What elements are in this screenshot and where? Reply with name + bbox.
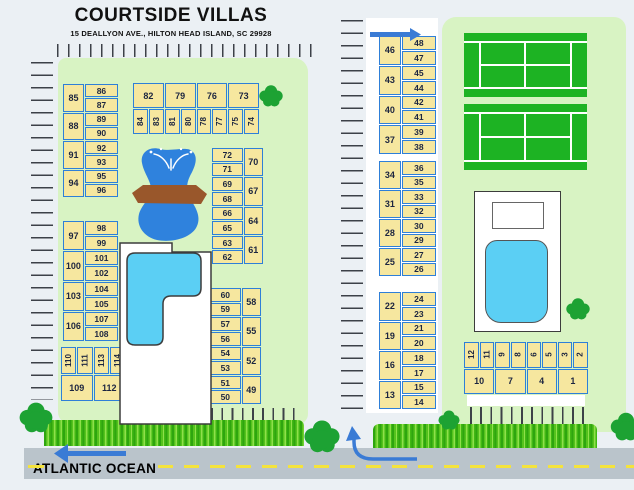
unit-109: 109 [61,375,93,402]
unit-102: 102 [85,266,118,280]
unit-20: 20 [402,336,436,350]
unit-44: 44 [402,81,436,95]
unit-118: 118 [159,375,191,402]
unit-83: 83 [149,109,164,134]
unit-38: 38 [402,140,436,154]
unit-66: 66 [212,207,243,221]
unit-42: 42 [402,96,436,110]
unit-88: 88 [63,113,84,141]
unit-98: 98 [85,221,118,235]
unit-7: 7 [495,369,525,395]
unit-21: 21 [402,322,436,336]
unit-116: 116 [126,347,141,374]
unit-33: 33 [402,190,436,204]
building-61-72: 727170696867666564636261 [212,148,263,264]
unit-57: 57 [210,317,241,331]
unit-101: 101 [85,251,118,265]
unit-68: 68 [212,192,243,206]
unit-47: 47 [402,51,436,65]
unit-117: 117 [142,347,157,374]
unit-77: 77 [212,109,227,134]
unit-12: 12 [464,342,479,368]
unit-81: 81 [165,109,180,134]
unit-104: 104 [85,282,118,296]
unit-76: 76 [197,83,228,108]
unit-40: 40 [379,96,401,125]
unit-55: 55 [242,317,261,345]
unit-95: 95 [85,170,118,183]
unit-120: 120 [175,347,190,374]
building-73-84: 827976738483818078777574 [133,83,259,134]
unit-26: 26 [402,263,436,277]
unit-15: 15 [402,381,436,395]
building-1-12: 121198653210741 [464,342,588,394]
unit-91: 91 [63,141,84,169]
unit-69: 69 [212,177,243,191]
unit-97: 97 [63,221,84,250]
unit-63: 63 [212,236,243,250]
unit-80: 80 [181,109,196,134]
unit-64: 64 [244,207,263,235]
building-37-48: 464847434544404241373938 [379,36,436,154]
unit-100: 100 [63,251,84,280]
unit-3: 3 [558,342,573,368]
unit-43: 43 [379,66,401,95]
unit-71: 71 [212,163,243,177]
unit-45: 45 [402,66,436,80]
unit-10: 10 [464,369,494,395]
unit-92: 92 [85,141,118,154]
building-25-36: 343635313332283029252726 [379,161,436,276]
unit-70: 70 [244,148,263,176]
unit-19: 19 [379,322,401,351]
unit-58: 58 [242,288,261,316]
unit-46: 46 [379,36,401,65]
building-97-108: 979899100101102103104105106107108 [63,221,118,341]
unit-85: 85 [63,84,84,112]
unit-119: 119 [159,347,174,374]
unit-52: 52 [242,347,261,375]
unit-94: 94 [63,170,84,198]
unit-27: 27 [402,248,436,262]
unit-29: 29 [402,234,436,248]
unit-105: 105 [85,297,118,311]
unit-2: 2 [573,342,588,368]
buildings-layer: 8586878889909192939495968279767384838180… [0,0,634,490]
unit-30: 30 [402,219,436,233]
building-13-24: 222423192120161817131514 [379,292,436,409]
unit-106: 106 [63,312,84,341]
unit-79: 79 [165,83,196,108]
unit-74: 74 [244,109,259,134]
unit-32: 32 [402,205,436,219]
unit-67: 67 [244,177,263,205]
unit-1: 1 [558,369,588,395]
unit-115: 115 [126,375,158,402]
unit-89: 89 [85,113,118,126]
unit-39: 39 [402,125,436,139]
unit-113: 113 [94,347,109,374]
unit-9: 9 [495,342,510,368]
unit-110: 110 [61,347,76,374]
unit-36: 36 [402,161,436,175]
unit-56: 56 [210,332,241,346]
unit-107: 107 [85,312,118,326]
unit-11: 11 [480,342,495,368]
unit-96: 96 [85,184,118,197]
unit-86: 86 [85,84,118,97]
unit-108: 108 [85,327,118,341]
unit-34: 34 [379,161,401,189]
unit-48: 48 [402,36,436,50]
unit-37: 37 [379,125,401,154]
building-85-96: 858687888990919293949596 [63,84,118,197]
unit-93: 93 [85,155,118,168]
unit-78: 78 [197,109,212,134]
unit-8: 8 [511,342,526,368]
unit-61: 61 [244,236,263,264]
unit-82: 82 [133,83,164,108]
unit-62: 62 [212,250,243,264]
unit-16: 16 [379,351,401,380]
unit-31: 31 [379,190,401,218]
unit-51: 51 [210,376,241,390]
unit-6: 6 [527,342,542,368]
unit-99: 99 [85,236,118,250]
unit-17: 17 [402,366,436,380]
unit-25: 25 [379,248,401,276]
unit-103: 103 [63,282,84,311]
property-map: COURTSIDE VILLAS 15 DEALLYON AVE., HILTO… [0,0,634,490]
unit-13: 13 [379,381,401,410]
unit-73: 73 [228,83,259,108]
unit-24: 24 [402,292,436,306]
unit-114: 114 [110,347,125,374]
unit-22: 22 [379,292,401,321]
unit-111: 111 [77,347,92,374]
unit-14: 14 [402,395,436,409]
unit-28: 28 [379,219,401,247]
unit-72: 72 [212,148,243,162]
unit-84: 84 [133,109,148,134]
unit-54: 54 [210,347,241,361]
unit-90: 90 [85,127,118,140]
unit-23: 23 [402,307,436,321]
unit-50: 50 [210,390,241,404]
unit-4: 4 [527,369,557,395]
unit-49: 49 [242,376,261,404]
unit-53: 53 [210,361,241,375]
building-49-60: 605958575655545352515049 [210,288,261,404]
unit-112: 112 [94,375,126,402]
unit-65: 65 [212,221,243,235]
unit-60: 60 [210,288,241,302]
building-109-120: 110111113114116117119120109112115118 [61,347,190,401]
unit-41: 41 [402,110,436,124]
unit-18: 18 [402,351,436,365]
unit-5: 5 [542,342,557,368]
unit-87: 87 [85,98,118,111]
unit-75: 75 [228,109,243,134]
unit-35: 35 [402,176,436,190]
unit-59: 59 [210,303,241,317]
